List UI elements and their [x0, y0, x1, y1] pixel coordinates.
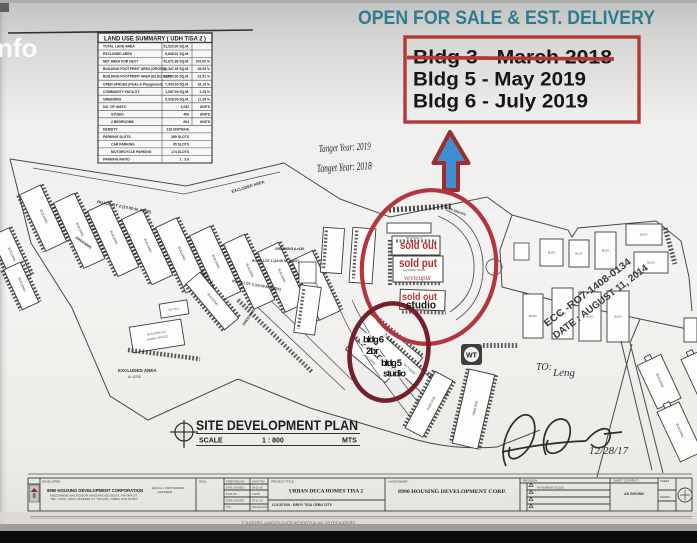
svg-text:42,671.99 SQ.M.: 42,671.99 SQ.M. [163, 60, 189, 64]
svg-text:nfo: nfo [0, 33, 37, 63]
svg-text:studio: studio [383, 369, 406, 380]
svg-text:604: 604 [183, 120, 189, 124]
svg-text:CAR PARKING: CAR PARKING [111, 143, 135, 147]
svg-text:SCALE: SCALE [199, 438, 223, 445]
svg-text:PARKING RATIO: PARKING RATIO [103, 158, 130, 162]
svg-text:A: A [530, 490, 532, 494]
svg-text:406: 406 [183, 112, 189, 116]
svg-text:PREPARED BY :: PREPARED BY : [226, 480, 247, 484]
svg-text:2 BEDROOMS: 2 BEDROOMS [111, 120, 135, 124]
svg-text:23.91 %: 23.91 % [198, 75, 210, 79]
svg-text:100.00 %: 100.00 % [196, 60, 210, 64]
svg-text:1,087.00 SQ.M.: 1,087.00 SQ.M. [165, 90, 189, 94]
svg-text:Leng: Leng [552, 367, 576, 379]
svg-text:COMMUNITY FACILITY: COMMUNITY FACILITY [103, 90, 141, 94]
svg-text:SHEET CONTENT :: SHEET CONTENT : [613, 479, 640, 483]
svg-text:A= 8230: A= 8230 [128, 375, 141, 379]
svg-text:8990 HOUSING DEVELOPMENT CORPO: 8990 HOUSING DEVELOPMENT CORPORATION [47, 488, 144, 493]
svg-text:UNITS: UNITS [200, 105, 211, 109]
svg-text:11.39 %: 11.39 % [198, 97, 210, 101]
svg-text:DENSITY: DENSITY [103, 128, 118, 132]
svg-text:2br: 2br [366, 346, 379, 357]
svg-text:GREENING: GREENING [103, 97, 121, 101]
svg-text:95 SLOTS: 95 SLOTS [173, 143, 190, 147]
svg-text:OPEN FOR SALE & EST. DELIVERY: OPEN FOR SALE & EST. DELIVERY [358, 8, 655, 29]
svg-text:ERICA A. KRISTENSEN: ERICA A. KRISTENSEN [152, 486, 184, 490]
svg-text:1 : 3.6: 1 : 3.6 [179, 158, 189, 162]
svg-text:EXCLUDED AREA: EXCLUDED AREA [118, 368, 157, 373]
svg-text:8,848.01 SQ.M.: 8,848.01 SQ.M. [165, 52, 189, 56]
svg-text:Bldg 6 - July 2019: Bldg 6 - July 2019 [413, 92, 588, 113]
svg-text:8990 HOUSING DEVELOPMENT CORP.: 8990 HOUSING DEVELOPMENT CORP. [398, 489, 507, 495]
svg-text:PCM NO. :: PCM NO. : [226, 492, 239, 496]
svg-text:ENGINEER: ENGINEER [158, 490, 172, 494]
svg-text:1 : 800: 1 : 800 [262, 438, 284, 445]
svg-text:SHEET: SHEET [660, 479, 670, 483]
svg-text:BLDG: BLDG [548, 251, 556, 255]
svg-text:TOTAL LAND AREA: TOTAL LAND AREA [103, 45, 135, 49]
svg-text:28.93 %: 28.93 % [198, 67, 210, 71]
svg-text:AS SHOWN: AS SHOWN [624, 492, 644, 496]
svg-text:41978: 41978 [252, 492, 260, 496]
svg-text:SITE DEVELOPMENT PLAN: SITE DEVELOPMENT PLAN [196, 417, 358, 433]
svg-text:BLDG: BLDG [602, 249, 610, 253]
svg-text:11,740.00 SQ.M.: 11,740.00 SQ.M. [164, 75, 190, 79]
svg-text:UNITS: UNITS [200, 112, 211, 116]
svg-text:09-01-18: 09-01-18 [252, 486, 263, 490]
svg-text:A: A [530, 497, 532, 501]
svg-text:GREENING A=436: GREENING A=436 [275, 247, 304, 251]
svg-text:LANDOWNER :: LANDOWNER : [388, 480, 409, 484]
svg-text:A: A [530, 504, 532, 508]
svg-text:269 SLOTS: 269 SLOTS [171, 135, 190, 139]
svg-text:BUILDING FOOTPRINT AREA (GROSS: BUILDING FOOTPRINT AREA (GROSS) [103, 67, 166, 71]
svg-text:sold put: sold put [399, 258, 437, 270]
svg-text:PARKING SLOTS: PARKING SLOTS [103, 135, 131, 139]
svg-text:NOVEMBER 03,2016: NOVEMBER 03,2016 [537, 486, 564, 490]
svg-text:DATE ISSUED :: DATE ISSUED : [226, 499, 245, 503]
svg-text:ENGRG: ENGRG [660, 495, 670, 499]
svg-text:URBAN DECA HOMES TISA 2: URBAN DECA HOMES TISA 2 [289, 490, 364, 495]
svg-text:bldg 6: bldg 6 [363, 335, 384, 346]
svg-text:18.14 %: 18.14 % [198, 82, 210, 86]
svg-text:BLDG: BLDG [614, 315, 622, 319]
svg-text:STUDIO: STUDIO [111, 112, 124, 116]
svg-text:studio: studio [406, 300, 436, 312]
svg-text:sold out: sold out [400, 240, 437, 252]
svg-text:TEL. NOS. (032) 4163426-27: TEL. NOS. (032) 4163426-27 TAISAN, CEBU … [50, 497, 138, 501]
svg-text:BLDG: BLDG [529, 314, 537, 318]
svg-text:Bldg 5 - May 2019: Bldg 5 - May 2019 [413, 70, 586, 91]
svg-text:SEAL: SEAL [199, 480, 207, 484]
svg-text:12,347.49 SQ.M.: 12,347.49 SQ.M. [163, 67, 189, 71]
svg-text:MTS: MTS [342, 438, 357, 445]
svg-text:5,938.00 SQ.M.: 5,938.00 SQ.M. [165, 97, 189, 101]
svg-text:7,343.00 SQ.M.: 7,343.00 SQ.M. [165, 82, 189, 86]
svg-text:LOCATION : BRGY TISA CEBU CITY: LOCATION : BRGY TISA CEBU CITY [272, 503, 333, 507]
svg-text:BUILDING FOOTPRINT AREA (BLDG: BUILDING FOOTPRINT AREA (BLDG GRP) [103, 75, 171, 79]
svg-text:OPEN SPACES (Parks & Playgroun: OPEN SPACES (Parks & Playground) [103, 82, 163, 86]
svg-text:WT: WT [466, 353, 478, 360]
svg-text:174 SLOTS: 174 SLOTS [171, 150, 190, 154]
svg-text:1,032: 1,032 [181, 105, 190, 109]
svg-text:12/28/17: 12/28/17 [589, 445, 629, 457]
svg-text:07-11-18: 07-11-18 [252, 499, 263, 503]
svg-text:TO:: TO: [536, 362, 552, 373]
svg-text:BLDG: BLDG [647, 261, 655, 265]
svg-text:TIN :: TIN : [226, 505, 232, 509]
svg-text:EXCLUDED AREA: EXCLUDED AREA [103, 52, 133, 56]
svg-text:DEVELOPER :: DEVELOPER : [42, 480, 62, 484]
svg-text:DRAFTED: DRAFTED [252, 480, 265, 484]
svg-text:BLDG: BLDG [575, 252, 583, 256]
svg-text:218 UNITS/HA: 218 UNITS/HA [166, 128, 189, 132]
svg-text:51,520.00 SQ.M.: 51,520.00 SQ.M. [163, 45, 189, 49]
svg-text:PROJECT TITLE :: PROJECT TITLE : [271, 480, 296, 484]
svg-text:2.15 %: 2.15 % [199, 90, 210, 94]
svg-text:LAND USE SUMMARY ( UDH TISA: LAND USE SUMMARY ( UDH TISA 2 ) [104, 36, 206, 43]
svg-text:UNITS: UNITS [200, 120, 211, 124]
svg-text:BLDG: BLDG [640, 233, 648, 237]
svg-text:NO. OF UNITS: NO. OF UNITS [103, 105, 127, 109]
svg-text:MOTORCYCLE PARKING: MOTORCYCLE PARKING [111, 150, 152, 154]
svg-text:vevteuput: vevteuput [404, 274, 432, 282]
svg-text:NET AREA FOR DEVT: NET AREA FOR DEVT [103, 60, 139, 64]
svg-text:ROAD LOT 4 (10.00 M. WIDE): ROAD LOT 4 (10.00 M. WIDE) [252, 259, 299, 263]
svg-text:A: A [530, 483, 532, 487]
svg-text:REVISION: REVISION [523, 479, 537, 483]
svg-text:bldg 5: bldg 5 [381, 358, 403, 369]
svg-text:PRODUCED BY AN AUTODESK EDUCAT: PRODUCED BY AN AUTODESK EDUCATIONAL PROD… [241, 521, 355, 526]
svg-text:DATE SIGNED :: DATE SIGNED : [226, 486, 246, 490]
svg-text:405-532-201: 405-532-201 [252, 505, 268, 509]
